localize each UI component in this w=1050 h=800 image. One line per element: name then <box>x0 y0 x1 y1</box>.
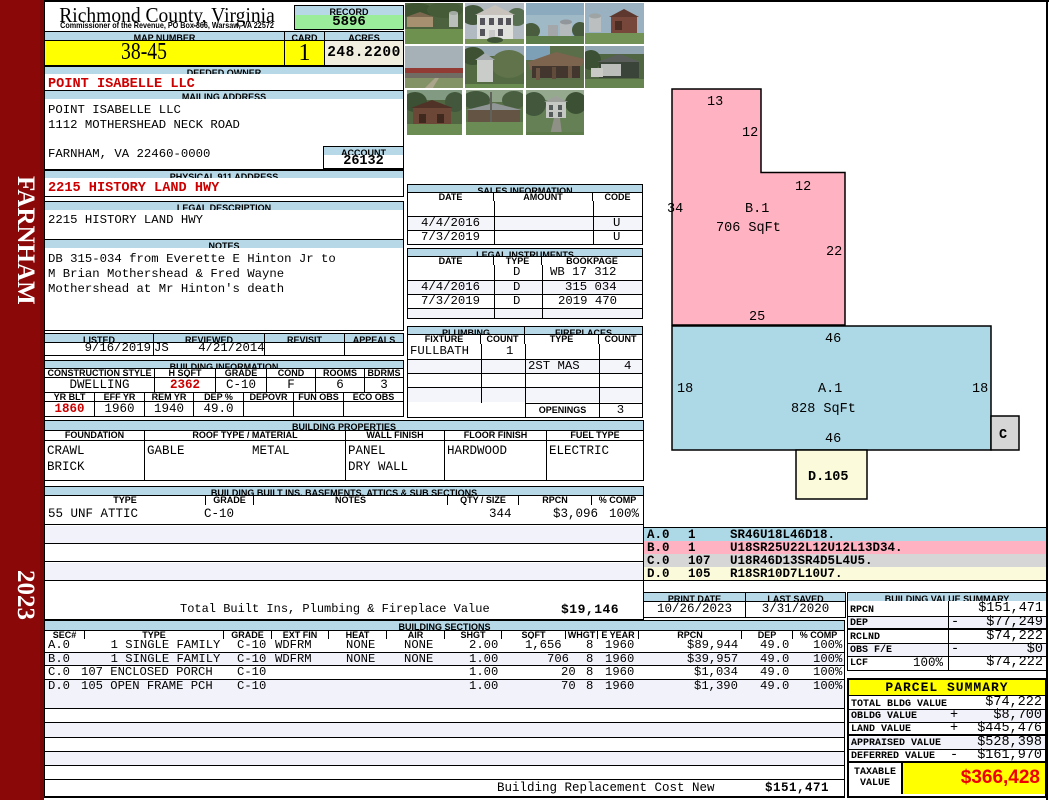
svg-text:828 SqFt: 828 SqFt <box>791 402 856 417</box>
svg-text:12: 12 <box>742 126 758 141</box>
svg-text:46: 46 <box>825 332 841 347</box>
svg-text:706 SqFt: 706 SqFt <box>716 221 781 236</box>
svg-text:22: 22 <box>826 245 842 260</box>
svg-text:34: 34 <box>667 202 683 217</box>
svg-text:18: 18 <box>972 382 988 397</box>
svg-text:13: 13 <box>707 95 723 110</box>
svg-text:C: C <box>999 428 1007 443</box>
svg-text:18: 18 <box>677 382 693 397</box>
svg-text:D.105: D.105 <box>808 470 849 485</box>
svg-text:12: 12 <box>795 180 811 195</box>
svg-text:46: 46 <box>825 432 841 447</box>
svg-text:B.1: B.1 <box>745 202 769 217</box>
svg-text:A.1: A.1 <box>818 382 842 397</box>
svg-text:25: 25 <box>749 310 765 325</box>
